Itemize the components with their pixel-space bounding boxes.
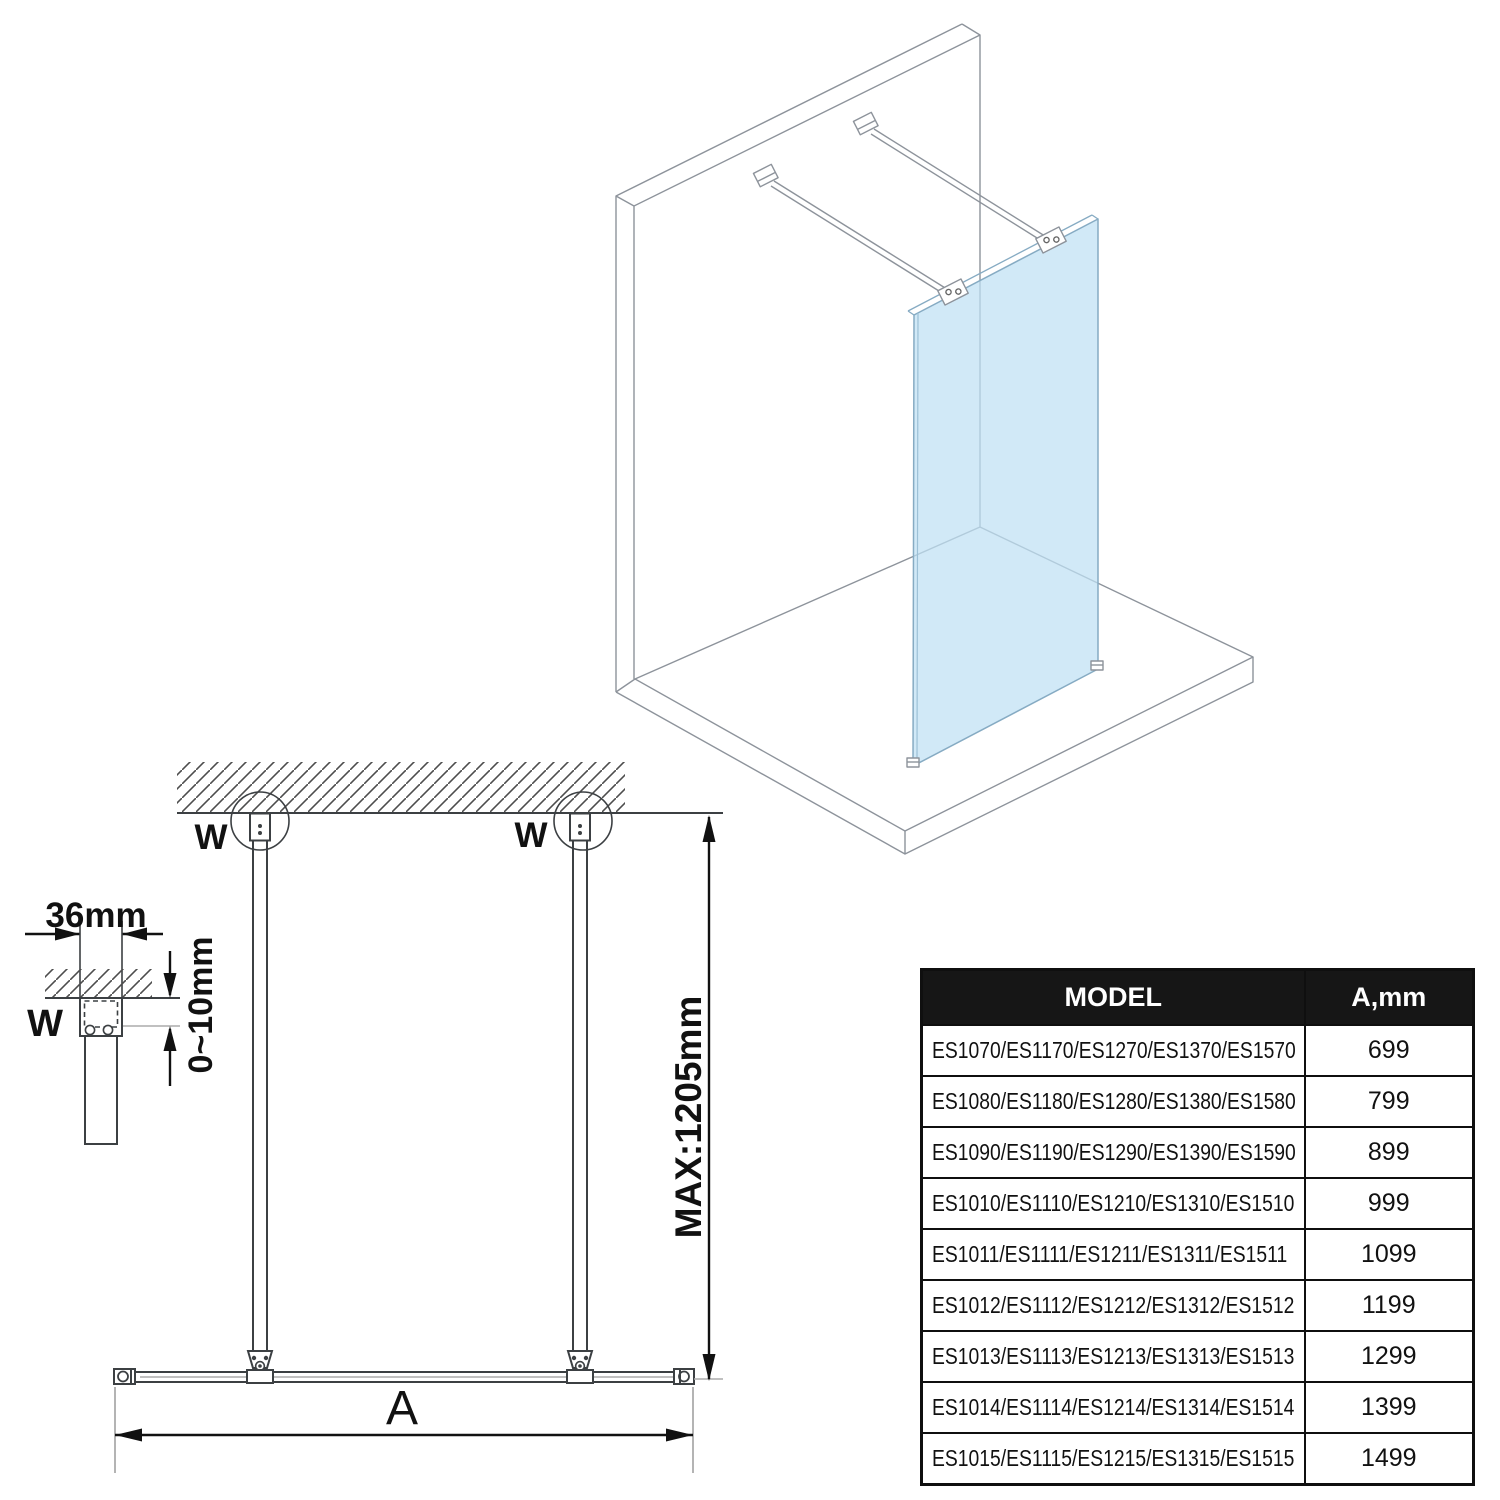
table-header-row: MODEL A,mm <box>922 970 1474 1026</box>
detail-view: 36mm 0~10mm W <box>25 896 220 1144</box>
value-cell: 799 <box>1305 1076 1474 1127</box>
model-cell: ES1090/ES1190/ES1290/ES1390/ES1590 <box>932 1139 1296 1166</box>
bracket-width-label: 36mm <box>45 896 146 935</box>
a-mm-column-header: A,mm <box>1305 970 1474 1026</box>
support-bar-rear <box>853 112 1048 243</box>
end-cap-right <box>674 1369 723 1384</box>
model-cell: ES1013/ES1113/ES1213/ES1313/ES1513 <box>932 1343 1294 1370</box>
wall-hatch-detail <box>45 969 152 998</box>
pivot-left <box>247 1351 273 1383</box>
table-row: ES1013/ES1113/ES1213/ES1313/ES1513 1299 <box>922 1331 1474 1382</box>
end-cap-left <box>114 1369 135 1384</box>
plan-view: W W MAX:1205mm A <box>114 762 723 1473</box>
w-label-right: W <box>514 816 547 855</box>
model-cell: ES1015/ES1115/ES1215/ES1315/ES1515 <box>932 1445 1294 1472</box>
model-spec-table: MODEL A,mm ES1070/ES1170/ES1270/ES1370/E… <box>920 968 1475 1486</box>
wall-plate-rear <box>853 112 878 134</box>
glass-plan <box>135 1372 676 1382</box>
model-column-header: MODEL <box>922 970 1305 1026</box>
value-cell: 999 <box>1305 1178 1474 1229</box>
value-cell: 1199 <box>1305 1280 1474 1331</box>
model-cell: ES1080/ES1180/ES1280/ES1380/ES1580 <box>932 1088 1296 1115</box>
model-cell: ES1011/ES1111/ES1211/ES1311/ES1511 <box>932 1241 1287 1268</box>
wall-plate-front <box>753 164 778 186</box>
pivot-right <box>567 1351 593 1383</box>
value-cell: 699 <box>1305 1025 1474 1076</box>
support-bar-front <box>753 164 950 296</box>
table-row: ES1010/ES1110/ES1210/ES1310/ES1510 999 <box>922 1178 1474 1229</box>
gap-range-label: 0~10mm <box>182 936 220 1073</box>
glass-foot-rear <box>1091 661 1103 670</box>
table-row: ES1090/ES1190/ES1290/ES1390/ES1590 899 <box>922 1127 1474 1178</box>
spec-sheet: W W MAX:1205mm A <box>0 0 1500 1500</box>
w-label-detail: W <box>27 1003 63 1045</box>
glass-foot-front <box>907 758 919 767</box>
glass-panel <box>908 215 1098 766</box>
support-rod-left <box>250 814 270 1352</box>
model-cell: ES1014/ES1114/ES1214/ES1314/ES1514 <box>932 1394 1294 1421</box>
table-row: ES1080/ES1180/ES1280/ES1380/ES1580 799 <box>922 1076 1474 1127</box>
value-cell: 899 <box>1305 1127 1474 1178</box>
spec-table-body: ES1070/ES1170/ES1270/ES1370/ES1570 699 E… <box>922 1025 1474 1485</box>
rod-detail <box>85 1036 117 1144</box>
dimension-gap <box>164 951 177 1086</box>
model-cell: ES1070/ES1170/ES1270/ES1370/ES1570 <box>932 1037 1296 1064</box>
table-row: ES1014/ES1114/ES1214/ES1314/ES1514 1399 <box>922 1382 1474 1433</box>
table-row: ES1070/ES1170/ES1270/ES1370/ES1570 699 <box>922 1025 1474 1076</box>
model-cell: ES1012/ES1112/ES1212/ES1312/ES1512 <box>932 1292 1294 1319</box>
bracket-detail <box>80 998 122 1036</box>
max-length-label: MAX:1205mm <box>668 996 709 1239</box>
model-cell: ES1010/ES1110/ES1210/ES1310/ES1510 <box>932 1190 1294 1217</box>
value-cell: 1399 <box>1305 1382 1474 1433</box>
table-row: ES1012/ES1112/ES1212/ES1312/ES1512 1199 <box>922 1280 1474 1331</box>
w-label-left: W <box>194 818 227 857</box>
width-a-label: A <box>386 1382 418 1435</box>
iso-view <box>616 24 1253 854</box>
value-cell: 1099 <box>1305 1229 1474 1280</box>
support-rod-right <box>570 814 590 1352</box>
value-cell: 1299 <box>1305 1331 1474 1382</box>
value-cell: 1499 <box>1305 1433 1474 1485</box>
table-row: ES1015/ES1115/ES1215/ES1315/ES1515 1499 <box>922 1433 1474 1485</box>
table-row: ES1011/ES1111/ES1211/ES1311/ES1511 1099 <box>922 1229 1474 1280</box>
